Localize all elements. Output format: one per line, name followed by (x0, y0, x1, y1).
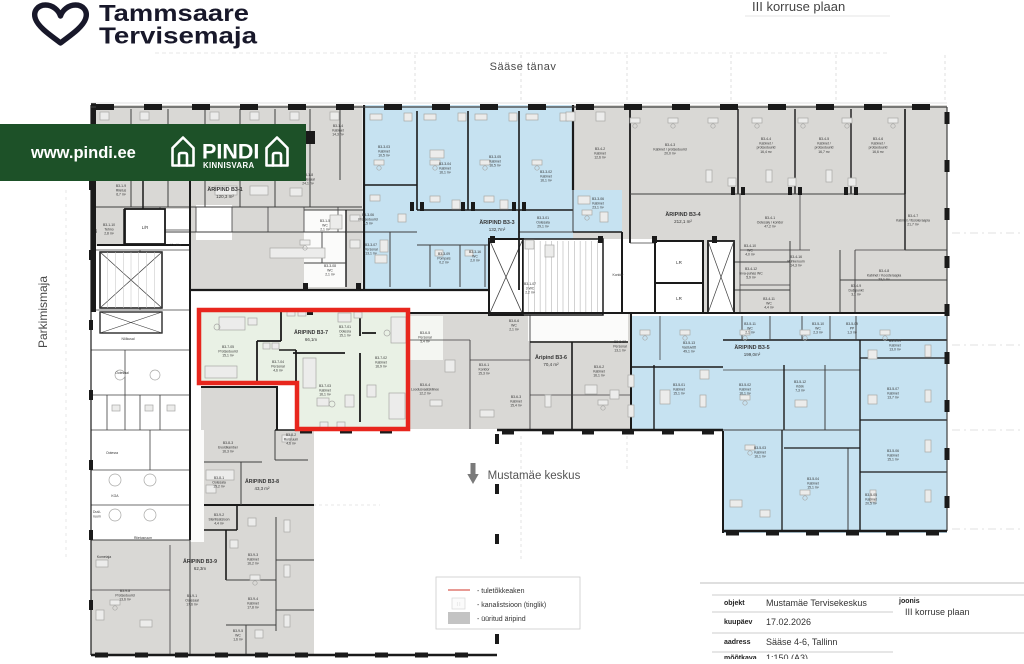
svg-text:17,6 m²: 17,6 m² (186, 603, 198, 607)
svg-text:17,8 m²: 17,8 m² (247, 606, 259, 610)
svg-text:Mustamäe keskus: Mustamäe keskus (488, 470, 581, 482)
svg-text:14,3 m²: 14,3 m² (790, 264, 802, 268)
svg-text:13,6 m²: 13,6 m² (119, 598, 131, 602)
svg-text:199,0m²: 199,0m² (744, 352, 761, 357)
svg-text:16,1 m²: 16,1 m² (739, 392, 751, 396)
svg-text:12,6 m²: 12,6 m² (594, 156, 606, 160)
svg-text:15,1 m²: 15,1 m² (339, 334, 351, 338)
svg-text:Kometaja: Kometaja (97, 555, 111, 559)
svg-text:2,1 m²: 2,1 m² (325, 273, 335, 277)
svg-text:16,1 m²: 16,1 m² (540, 179, 552, 183)
svg-text:∷: ∷ (457, 602, 461, 608)
svg-text:joonis: joonis (898, 598, 920, 605)
svg-text:Mustamäe Tervisekeskus: Mustamäe Tervisekeskus (766, 598, 867, 608)
svg-text:15,1 m²: 15,1 m² (887, 458, 899, 462)
svg-text:15,1 m²: 15,1 m² (222, 354, 234, 358)
svg-text:5,4 m²: 5,4 m² (420, 340, 430, 344)
svg-text:Ootesaal: Ootesaal (115, 371, 129, 375)
svg-text:29,1 m²: 29,1 m² (537, 225, 549, 229)
svg-text:66,1m: 66,1m (305, 337, 318, 342)
svg-text:PINDI: PINDI (202, 140, 259, 164)
svg-text:KINNISVARA: KINNISVARA (203, 161, 254, 170)
svg-text:- kanalistsioon (tinglik): - kanalistsioon (tinglik) (477, 602, 546, 609)
svg-text:24,1 m²: 24,1 m² (302, 182, 314, 186)
svg-text:Tervisemaja: Tervisemaja (99, 23, 257, 49)
svg-text:47,2 m²: 47,2 m² (764, 225, 776, 229)
svg-text:2,1 m²: 2,1 m² (320, 228, 330, 232)
svg-text:132,7m²: 132,7m² (489, 227, 506, 232)
svg-text:ÄRIPIND B3-4: ÄRIPIND B3-4 (665, 211, 700, 218)
svg-text:ÄRIPIND B3-3: ÄRIPIND B3-3 (479, 219, 514, 226)
svg-text:KGA: KGA (111, 494, 119, 498)
svg-text:1,6 m²: 1,6 m² (233, 638, 243, 642)
svg-text:16,1 m²: 16,1 m² (439, 171, 451, 175)
svg-text:15,1 m²: 15,1 m² (673, 392, 685, 396)
svg-text:21,7 m²: 21,7 m² (907, 223, 919, 227)
svg-text:Nõlkusal: Nõlkusal (121, 337, 134, 341)
svg-text:LR: LR (676, 260, 683, 265)
svg-text:- tuletõkkeaken: - tuletõkkeaken (477, 588, 525, 595)
svg-text:15,2 m²: 15,2 m² (213, 485, 225, 489)
svg-text:16,1 m²: 16,1 m² (593, 374, 605, 378)
svg-text:14,3 m²: 14,3 m² (332, 133, 344, 137)
svg-text:15,4 m²: 15,4 m² (510, 404, 522, 408)
svg-text:17.02.2026: 17.02.2026 (766, 617, 811, 627)
svg-text:www.pindi.ee: www.pindi.ee (30, 144, 136, 162)
svg-text:3,1 m²: 3,1 m² (851, 293, 861, 297)
svg-text:kuupäev: kuupäev (724, 619, 753, 626)
svg-text:L/R: L/R (142, 225, 149, 230)
svg-text:23,1 m²: 23,1 m² (878, 278, 890, 282)
svg-text:43,3 m²: 43,3 m² (255, 486, 270, 491)
svg-text:III korruse plaan: III korruse plaan (752, 0, 845, 14)
svg-text:16,3 m²: 16,3 m² (222, 450, 234, 454)
svg-text:Sääse 4-6, Tallinn: Sääse 4-6, Tallinn (766, 637, 837, 647)
svg-text:2,3 m²: 2,3 m² (813, 331, 823, 335)
svg-text:mõõtkava: mõõtkava (724, 655, 757, 659)
svg-text:7,3 m²: 7,3 m² (795, 389, 805, 393)
svg-text:12,2 m²: 12,2 m² (419, 392, 431, 396)
svg-text:4,6 m²: 4,6 m² (273, 369, 283, 373)
svg-text:16,4 m²: 16,4 m² (760, 150, 772, 154)
svg-text:aadress: aadress (724, 639, 751, 646)
svg-text:10,5 m²: 10,5 m² (378, 154, 390, 158)
svg-text:13,1 m²: 13,1 m² (614, 349, 626, 353)
svg-text:Koridor: Koridor (171, 243, 183, 247)
svg-text:23,1 m²: 23,1 m² (592, 206, 604, 210)
svg-text:16,9 m²: 16,9 m² (375, 365, 387, 369)
svg-text:1,3 m²: 1,3 m² (847, 331, 857, 335)
svg-text:LR: LR (676, 296, 683, 301)
svg-text:16,7 m²: 16,7 m² (818, 150, 830, 154)
svg-text:- üüritud äripind: - üüritud äripind (477, 616, 526, 623)
svg-text:2,8 m²: 2,8 m² (104, 232, 114, 236)
svg-text:15,3 m²: 15,3 m² (478, 372, 490, 376)
svg-text:6,7 m²: 6,7 m² (116, 193, 126, 197)
svg-text:ÄRIPIND B3-9: ÄRIPIND B3-9 (183, 558, 217, 565)
svg-text:13,1 m²: 13,1 m² (365, 252, 377, 256)
svg-text:15,1 m²: 15,1 m² (807, 486, 819, 490)
svg-text:Sääse tänav: Sääse tänav (490, 61, 557, 73)
svg-text:16,5 m²: 16,5 m² (489, 164, 501, 168)
svg-text:13,0 m²: 13,0 m² (889, 348, 901, 352)
svg-text:16,1 m²: 16,1 m² (319, 393, 331, 397)
svg-text:Äripind B3-6: Äripind B3-6 (535, 354, 567, 361)
svg-text:20,0 m²: 20,0 m² (664, 152, 676, 156)
svg-text:ÄRIPIND B3-7: ÄRIPIND B3-7 (294, 329, 328, 336)
svg-text:212,1 m²: 212,1 m² (674, 219, 692, 224)
svg-text:objekt: objekt (724, 600, 745, 607)
svg-text:49,1 m²: 49,1 m² (683, 350, 695, 354)
svg-text:4,4 m²: 4,4 m² (214, 522, 224, 526)
svg-text:Parkimismaja: Parkimismaja (36, 276, 50, 348)
svg-text:13,7 m²: 13,7 m² (887, 396, 899, 400)
svg-text:62,3m: 62,3m (194, 566, 207, 571)
svg-text:4,0 m²: 4,0 m² (745, 253, 755, 257)
svg-text:120,3 m²: 120,3 m² (216, 194, 234, 199)
svg-text:Ootesra: Ootesra (106, 451, 118, 455)
svg-text:70,4 m²: 70,4 m² (543, 362, 559, 367)
svg-text:16,2 m²: 16,2 m² (247, 562, 259, 566)
svg-text:1:150 (A3): 1:150 (A3) (766, 653, 808, 659)
svg-text:2,0 m²: 2,0 m² (470, 259, 480, 263)
svg-text:ÄRIPIND B3-5: ÄRIPIND B3-5 (734, 344, 769, 351)
svg-text:2,1 m²: 2,1 m² (509, 328, 519, 332)
svg-text:4,6 m²: 4,6 m² (286, 442, 296, 446)
svg-text:III korruse plaan: III korruse plaan (905, 607, 970, 617)
svg-text:4,4 m²: 4,4 m² (764, 306, 774, 310)
svg-text:Koridor: Koridor (613, 273, 625, 277)
svg-text:ÄRIPIND B3-1: ÄRIPIND B3-1 (207, 186, 242, 193)
svg-text:16,6 m²: 16,6 m² (872, 150, 884, 154)
svg-text:16,1 m²: 16,1 m² (754, 455, 766, 459)
svg-text:20,5 m²: 20,5 m² (865, 502, 877, 506)
svg-text:2,1 m²: 2,1 m² (745, 331, 755, 335)
svg-text:4,5 m²: 4,5 m² (363, 222, 373, 226)
svg-text:ruum: ruum (93, 514, 101, 518)
svg-text:ÄRIPIND B3-8: ÄRIPIND B3-8 (245, 478, 279, 485)
svg-text:Riietusruum: Riietusruum (134, 536, 152, 540)
svg-text:0,2 m²: 0,2 m² (439, 261, 449, 265)
svg-text:2,2 m²: 2,2 m² (525, 291, 535, 295)
svg-text:5,9 m²: 5,9 m² (746, 276, 756, 280)
